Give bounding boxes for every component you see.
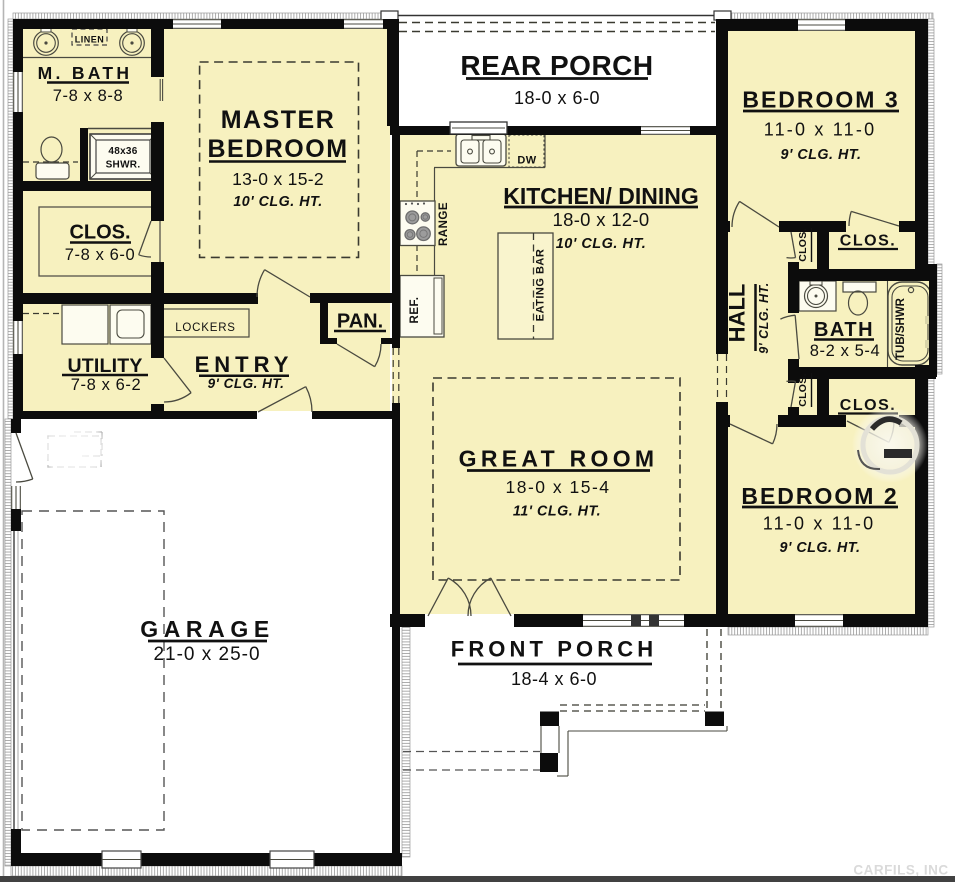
svg-text:21-0 x 25-0: 21-0 x 25-0 bbox=[153, 644, 260, 665]
svg-text:REAR PORCH: REAR PORCH bbox=[460, 50, 653, 81]
svg-text:LINEN: LINEN bbox=[75, 35, 105, 45]
svg-text:11-0 x 11-0: 11-0 x 11-0 bbox=[764, 120, 877, 140]
svg-text:SHWR.: SHWR. bbox=[106, 160, 141, 171]
svg-text:7-8 x 6-2: 7-8 x 6-2 bbox=[71, 376, 142, 394]
svg-text:9' CLG. HT.: 9' CLG. HT. bbox=[208, 376, 285, 391]
svg-text:10' CLG. HT.: 10' CLG. HT. bbox=[556, 236, 647, 252]
svg-text:48x36: 48x36 bbox=[108, 146, 137, 157]
svg-text:18-0 x 6-0: 18-0 x 6-0 bbox=[514, 88, 600, 108]
svg-text:M. BATH: M. BATH bbox=[38, 63, 133, 83]
svg-text:7-8 x 6-0: 7-8 x 6-0 bbox=[65, 246, 136, 264]
svg-text:8-2 x 5-4: 8-2 x 5-4 bbox=[810, 342, 881, 360]
svg-text:BEDROOM: BEDROOM bbox=[207, 135, 348, 163]
svg-text:9' CLG. HT.: 9' CLG. HT. bbox=[757, 282, 771, 353]
svg-text:CLOS.: CLOS. bbox=[840, 233, 896, 250]
svg-text:18-4 x 6-0: 18-4 x 6-0 bbox=[511, 669, 597, 689]
svg-text:REF.: REF. bbox=[409, 297, 421, 324]
svg-text:GREAT ROOM: GREAT ROOM bbox=[459, 446, 659, 472]
svg-text:HALL: HALL bbox=[725, 284, 750, 343]
svg-text:10' CLG. HT.: 10' CLG. HT. bbox=[233, 194, 322, 210]
svg-text:CARFILS, INC: CARFILS, INC bbox=[853, 863, 948, 878]
svg-text:TUB/SHWR: TUB/SHWR bbox=[895, 297, 907, 360]
svg-text:BEDROOM 2: BEDROOM 2 bbox=[741, 483, 898, 509]
svg-text:BATH: BATH bbox=[814, 319, 874, 341]
svg-text:18-0 x 12-0: 18-0 x 12-0 bbox=[553, 209, 650, 230]
svg-text:PAN.: PAN. bbox=[337, 311, 383, 333]
svg-text:18-0 x 15-4: 18-0 x 15-4 bbox=[505, 477, 610, 497]
svg-text:7-8 x 8-8: 7-8 x 8-8 bbox=[53, 87, 124, 105]
svg-text:ENTRY: ENTRY bbox=[195, 352, 294, 377]
svg-text:BEDROOM 3: BEDROOM 3 bbox=[742, 87, 899, 113]
svg-text:9' CLG. HT.: 9' CLG. HT. bbox=[781, 147, 862, 163]
svg-text:13-0 x 15-2: 13-0 x 15-2 bbox=[232, 169, 324, 189]
svg-text:CLOS.: CLOS. bbox=[797, 373, 809, 407]
svg-text:MASTER: MASTER bbox=[221, 106, 336, 134]
svg-text:FRONT PORCH: FRONT PORCH bbox=[451, 637, 657, 662]
svg-text:KITCHEN/ DINING: KITCHEN/ DINING bbox=[503, 183, 699, 209]
svg-text:9' CLG. HT.: 9' CLG. HT. bbox=[780, 540, 861, 556]
svg-text:CLOS.: CLOS. bbox=[69, 222, 130, 244]
svg-text:11-0 x 11-0: 11-0 x 11-0 bbox=[763, 514, 876, 534]
svg-text:11' CLG. HT.: 11' CLG. HT. bbox=[513, 504, 601, 520]
svg-text:DW: DW bbox=[517, 155, 536, 167]
svg-text:RANGE: RANGE bbox=[438, 202, 450, 246]
svg-text:GARAGE: GARAGE bbox=[140, 616, 275, 642]
svg-text:LOCKERS: LOCKERS bbox=[175, 322, 236, 334]
svg-text:EATING BAR: EATING BAR bbox=[535, 249, 547, 322]
svg-text:CLOS.: CLOS. bbox=[797, 228, 809, 262]
svg-text:UTILITY: UTILITY bbox=[67, 355, 142, 377]
